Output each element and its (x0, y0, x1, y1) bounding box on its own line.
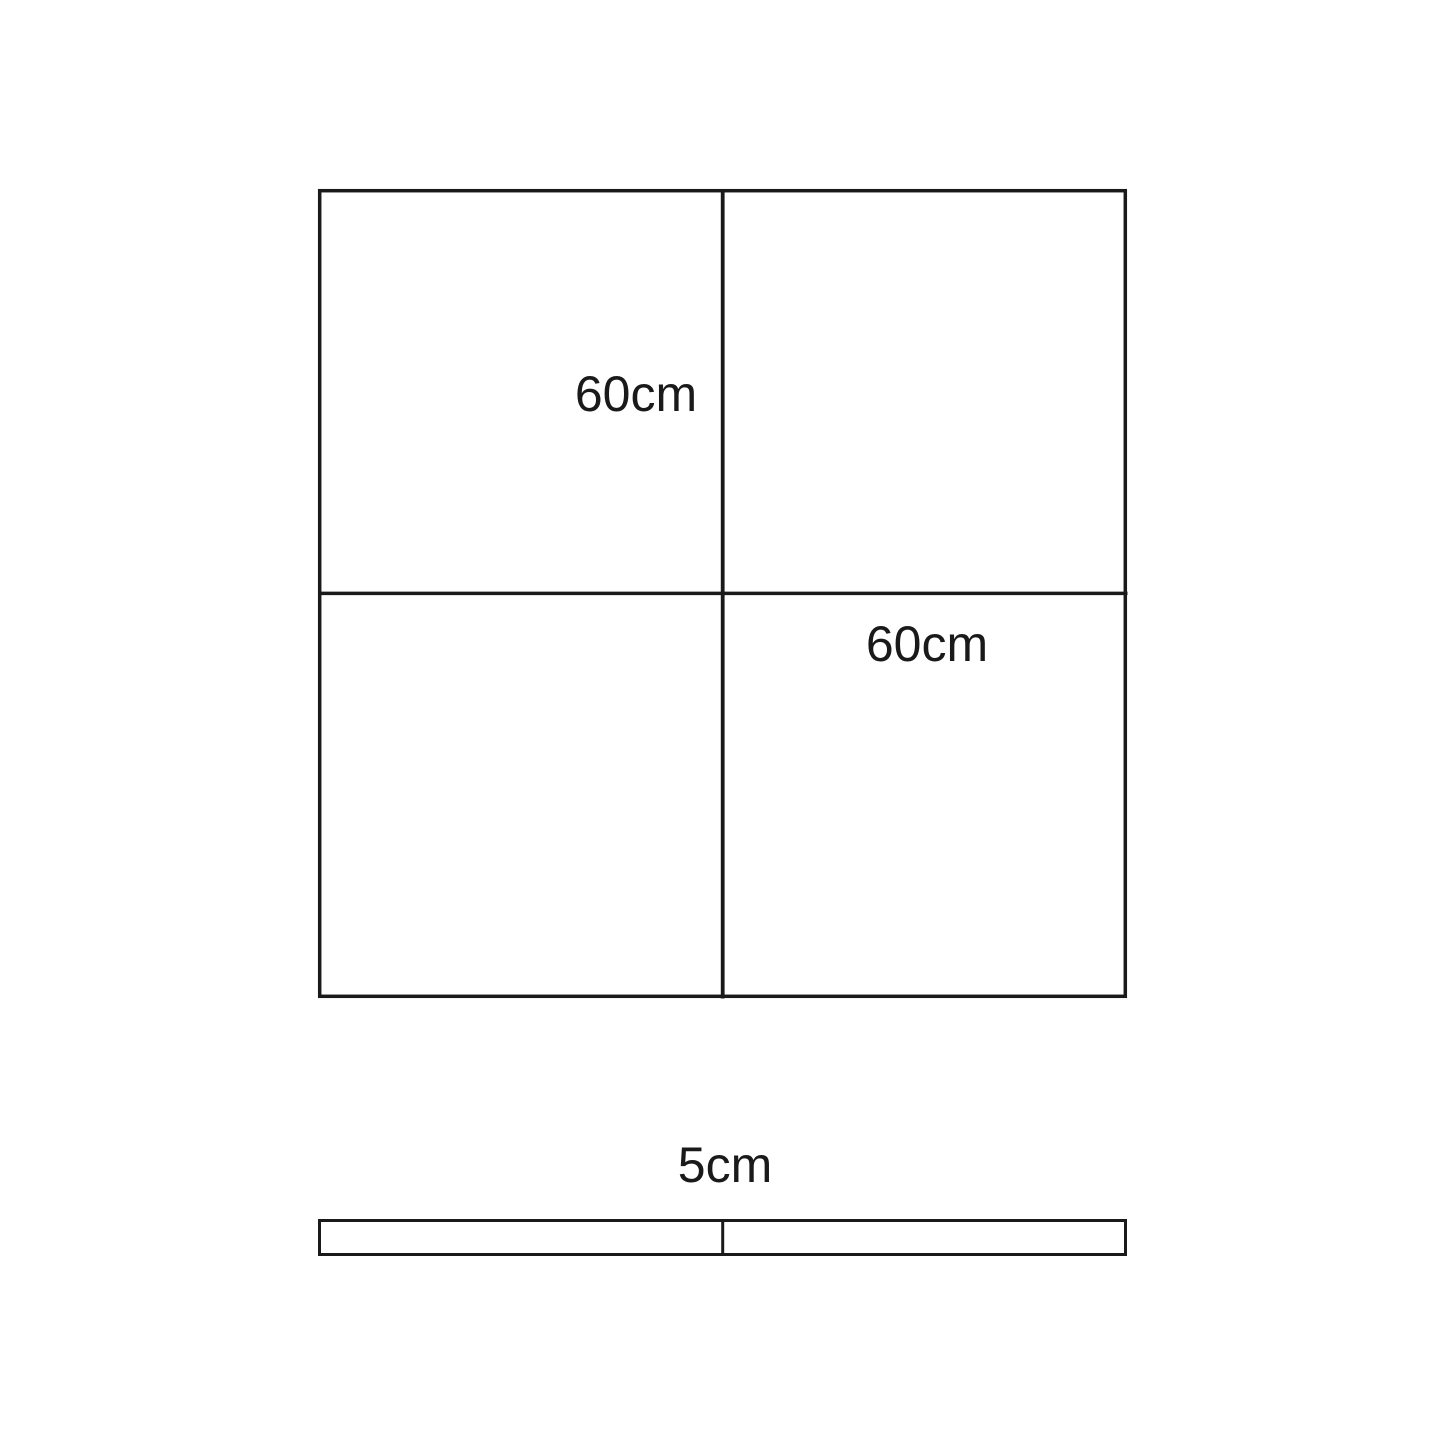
svg-text:60cm: 60cm (866, 616, 988, 672)
svg-text:5cm: 5cm (678, 1137, 772, 1193)
svg-text:60cm: 60cm (575, 366, 697, 422)
